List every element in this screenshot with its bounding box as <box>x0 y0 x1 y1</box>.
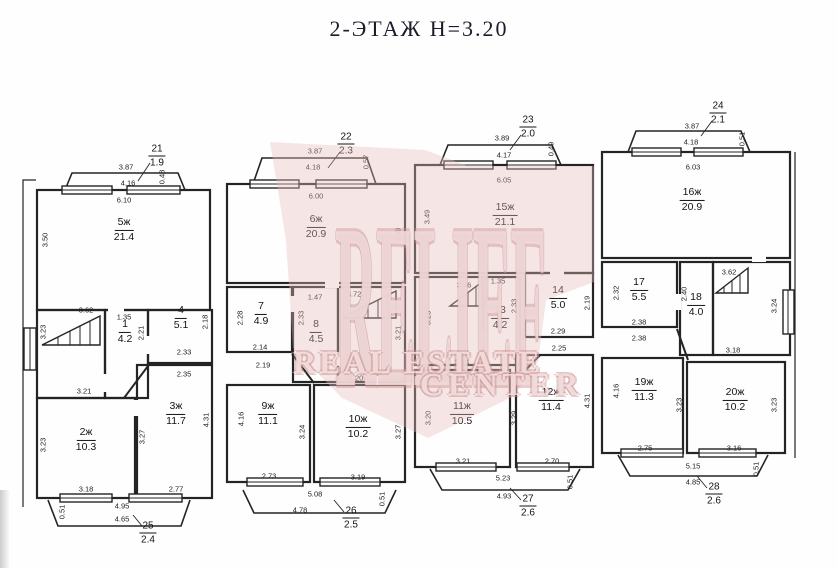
dimension-label: 2.29 <box>551 327 566 336</box>
room-label: 184.0 <box>687 292 705 318</box>
dimension-label: 2.25 <box>552 344 567 353</box>
dimension-label: 4.78 <box>293 506 308 515</box>
dimension-label: 3.46 <box>457 281 472 290</box>
dimension-label: 0.51 <box>566 475 575 490</box>
room-label: 84.5 <box>309 319 324 345</box>
dimension-label: 3.23 <box>39 438 48 453</box>
room-label: 145.0 <box>549 285 567 311</box>
dimension-label: 0.49 <box>547 142 556 157</box>
dimension-label: 0.51 <box>738 132 747 147</box>
dimension-label: 1.47 <box>308 293 323 302</box>
balcony-label: 282.6 <box>705 482 722 507</box>
dimension-label: 3.21 <box>456 457 471 466</box>
dimension-label: 2.18 <box>201 315 210 330</box>
dimension-label: 6.03 <box>686 163 701 172</box>
balcony-label: 262.5 <box>342 506 359 531</box>
room-label: 134.2 <box>491 305 509 331</box>
dimension-label: 3.21 <box>77 387 92 396</box>
scan-smudge <box>0 490 10 568</box>
dimension-label: 3.29 <box>510 411 519 426</box>
dimension-label: 6.05 <box>497 176 512 185</box>
dimension-label: 4.31 <box>583 394 592 409</box>
dimension-label: 3.23 <box>675 398 684 413</box>
balcony-label: 272.6 <box>519 494 536 519</box>
dimension-label: 0.51 <box>378 492 387 507</box>
dimension-label: 3.87 <box>119 163 134 172</box>
dimension-label: 5.08 <box>308 490 323 499</box>
dimension-label: 4.16 <box>121 179 136 188</box>
dimension-label: 2.14 <box>253 343 268 352</box>
dimension-label: 1.35 <box>491 277 506 286</box>
room-label: 74.9 <box>254 301 269 327</box>
dimension-label: 2.28 <box>236 311 245 326</box>
balcony-label: 232.0 <box>519 115 536 140</box>
dimension-label: 4.95 <box>115 502 130 511</box>
dimension-label: 4.17 <box>497 151 512 160</box>
room-label: 15ж21.1 <box>493 202 518 228</box>
dimension-label: 3.20 <box>349 374 364 383</box>
room-label: 9ж11.1 <box>258 401 278 427</box>
dimension-label: 3.62 <box>722 268 737 277</box>
dimension-label: 3.89 <box>495 134 510 143</box>
dimension-label: 3.72 <box>347 290 362 299</box>
dimension-label: 2.38 <box>632 334 647 343</box>
dimension-label: 2.19 <box>256 361 271 370</box>
dimension-label: 4.93 <box>497 492 512 501</box>
room-label: 2ж10.3 <box>76 427 96 453</box>
dimension-label: 4.18 <box>684 138 699 147</box>
dimension-label: 3.20 <box>424 411 433 426</box>
room-label: 12ж11.4 <box>539 387 564 413</box>
dimension-label: 3.24 <box>770 299 779 314</box>
room-label: 175.5 <box>630 277 648 303</box>
dimension-label: 2.38 <box>632 318 647 327</box>
dimension-label: 0.57 <box>362 155 371 170</box>
dimension-label: 3.18 <box>726 346 741 355</box>
dimension-label: 6.10 <box>117 196 132 205</box>
dimension-label: 2.33 <box>297 311 306 326</box>
dimension-label: 6.00 <box>309 192 324 201</box>
dimension-label: 2.32 <box>612 286 621 301</box>
dimension-label: 3.87 <box>685 122 700 131</box>
dimension-label: 3.27 <box>138 430 147 445</box>
dimension-label: 0.51 <box>752 462 761 477</box>
dimension-label: 0.48 <box>158 170 167 185</box>
dimension-label: 3.49 <box>423 210 432 225</box>
dimension-label: 3.87 <box>308 147 323 156</box>
dimension-label: 4.85 <box>686 478 701 487</box>
balcony-label: 252.4 <box>139 521 156 546</box>
dimension-label: 2.19 <box>583 296 592 311</box>
dimension-label: 2.73 <box>262 472 277 481</box>
dimension-label: 3.27 <box>394 425 403 440</box>
dimension-label: 3.62 <box>79 306 94 315</box>
dimension-label: 5.15 <box>686 462 701 471</box>
dimension-label: 3.21 <box>394 326 403 341</box>
dimension-label: 3.24 <box>455 358 470 367</box>
balcony-label: 242.1 <box>709 101 726 126</box>
dimension-label: 2.21 <box>137 326 146 341</box>
room-label: 14.2 <box>118 319 133 345</box>
dimension-label: 3.23 <box>770 398 779 413</box>
dimension-label: 4.16 <box>612 384 621 399</box>
dimension-label: 3.16 <box>727 444 742 453</box>
room-label: 10ж10.2 <box>346 414 371 440</box>
labels-layer: 3.874.160.486.103.503.621.352.212.182.33… <box>0 0 838 568</box>
dimension-label: 2.35 <box>177 370 192 379</box>
room-label: 16ж20.9 <box>680 187 705 213</box>
balcony-label: 211.9 <box>148 144 165 169</box>
dimension-label: 2.33 <box>177 348 192 357</box>
room-label: 20ж10.2 <box>723 387 748 413</box>
dimension-label: 3.19 <box>351 473 366 482</box>
dimension-label: 4.16 <box>237 412 246 427</box>
room-label: 5ж21.4 <box>114 217 134 243</box>
balcony-label: 222.3 <box>337 132 354 157</box>
room-label: 11ж10.5 <box>450 401 474 427</box>
dimension-label: 3.23 <box>39 325 48 340</box>
dimension-label: 2.33 <box>510 299 519 314</box>
dimension-label: 5.23 <box>496 474 511 483</box>
dimension-label: 3.24 <box>298 425 307 440</box>
room-label: 19ж11.3 <box>632 377 657 403</box>
dimension-label: 2.70 <box>545 457 560 466</box>
room-label: 3ж11.7 <box>166 401 186 427</box>
dimension-label: 2.75 <box>638 444 653 453</box>
dimension-label: 4.65 <box>115 515 130 524</box>
dimension-label: 3.49 <box>394 228 403 243</box>
dimension-label: 4.31 <box>202 413 211 428</box>
room-label: 6ж20.9 <box>306 214 326 240</box>
dimension-label: 3.23 <box>424 311 433 326</box>
dimension-label: 4.18 <box>306 163 321 172</box>
dimension-label: 3.50 <box>41 233 50 248</box>
room-label: 45.1 <box>174 305 189 331</box>
dimension-label: 0.51 <box>58 505 67 520</box>
dimension-label: 3.18 <box>79 485 94 494</box>
floor-plan-page: 2-ЭТАЖ Н=3.20 <box>0 0 838 568</box>
dimension-label: 2.77 <box>169 485 184 494</box>
